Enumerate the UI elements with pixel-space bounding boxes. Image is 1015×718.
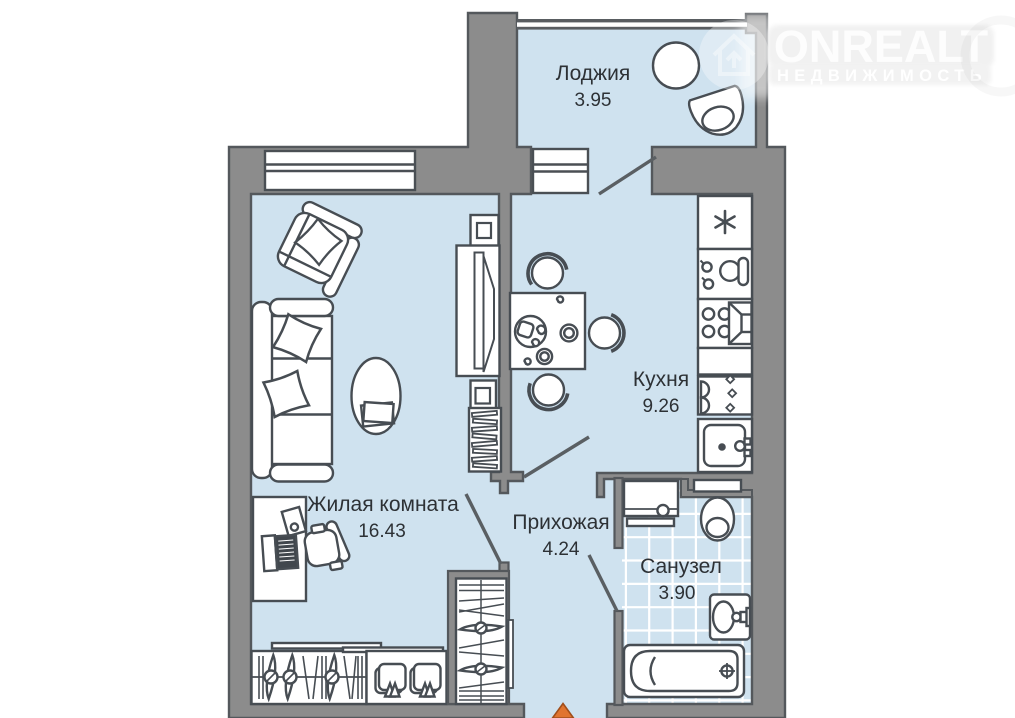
svg-text:Кухня: Кухня — [633, 368, 689, 391]
svg-text:НЕДВИЖИМОСТЬ: НЕДВИЖИМОСТЬ — [777, 67, 987, 85]
svg-text:Санузел: Санузел — [640, 555, 722, 578]
svg-text:4.24: 4.24 — [543, 539, 580, 560]
svg-text:16.43: 16.43 — [358, 521, 406, 542]
svg-text:9.26: 9.26 — [643, 396, 680, 417]
svg-text:3.95: 3.95 — [575, 90, 612, 111]
svg-text:3.90: 3.90 — [659, 583, 696, 604]
svg-text:Лоджия: Лоджия — [556, 62, 630, 85]
svg-text:Жилая комната: Жилая комната — [307, 493, 459, 516]
svg-text:Прихожая: Прихожая — [512, 511, 609, 534]
